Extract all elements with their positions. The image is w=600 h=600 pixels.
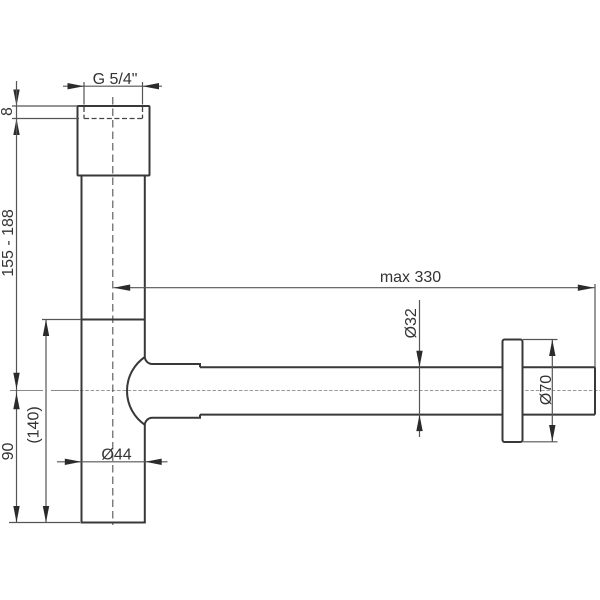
svg-text:Ø70: Ø70 bbox=[538, 375, 555, 405]
svg-text:90: 90 bbox=[0, 443, 17, 461]
svg-text:max 330: max 330 bbox=[380, 269, 441, 286]
svg-text:(140): (140) bbox=[26, 406, 43, 443]
svg-text:155 - 188: 155 - 188 bbox=[0, 209, 17, 277]
svg-text:Ø32: Ø32 bbox=[403, 308, 420, 338]
svg-text:G 5/4": G 5/4" bbox=[93, 71, 138, 88]
svg-text:8: 8 bbox=[0, 107, 16, 116]
svg-text:Ø44: Ø44 bbox=[101, 446, 131, 463]
